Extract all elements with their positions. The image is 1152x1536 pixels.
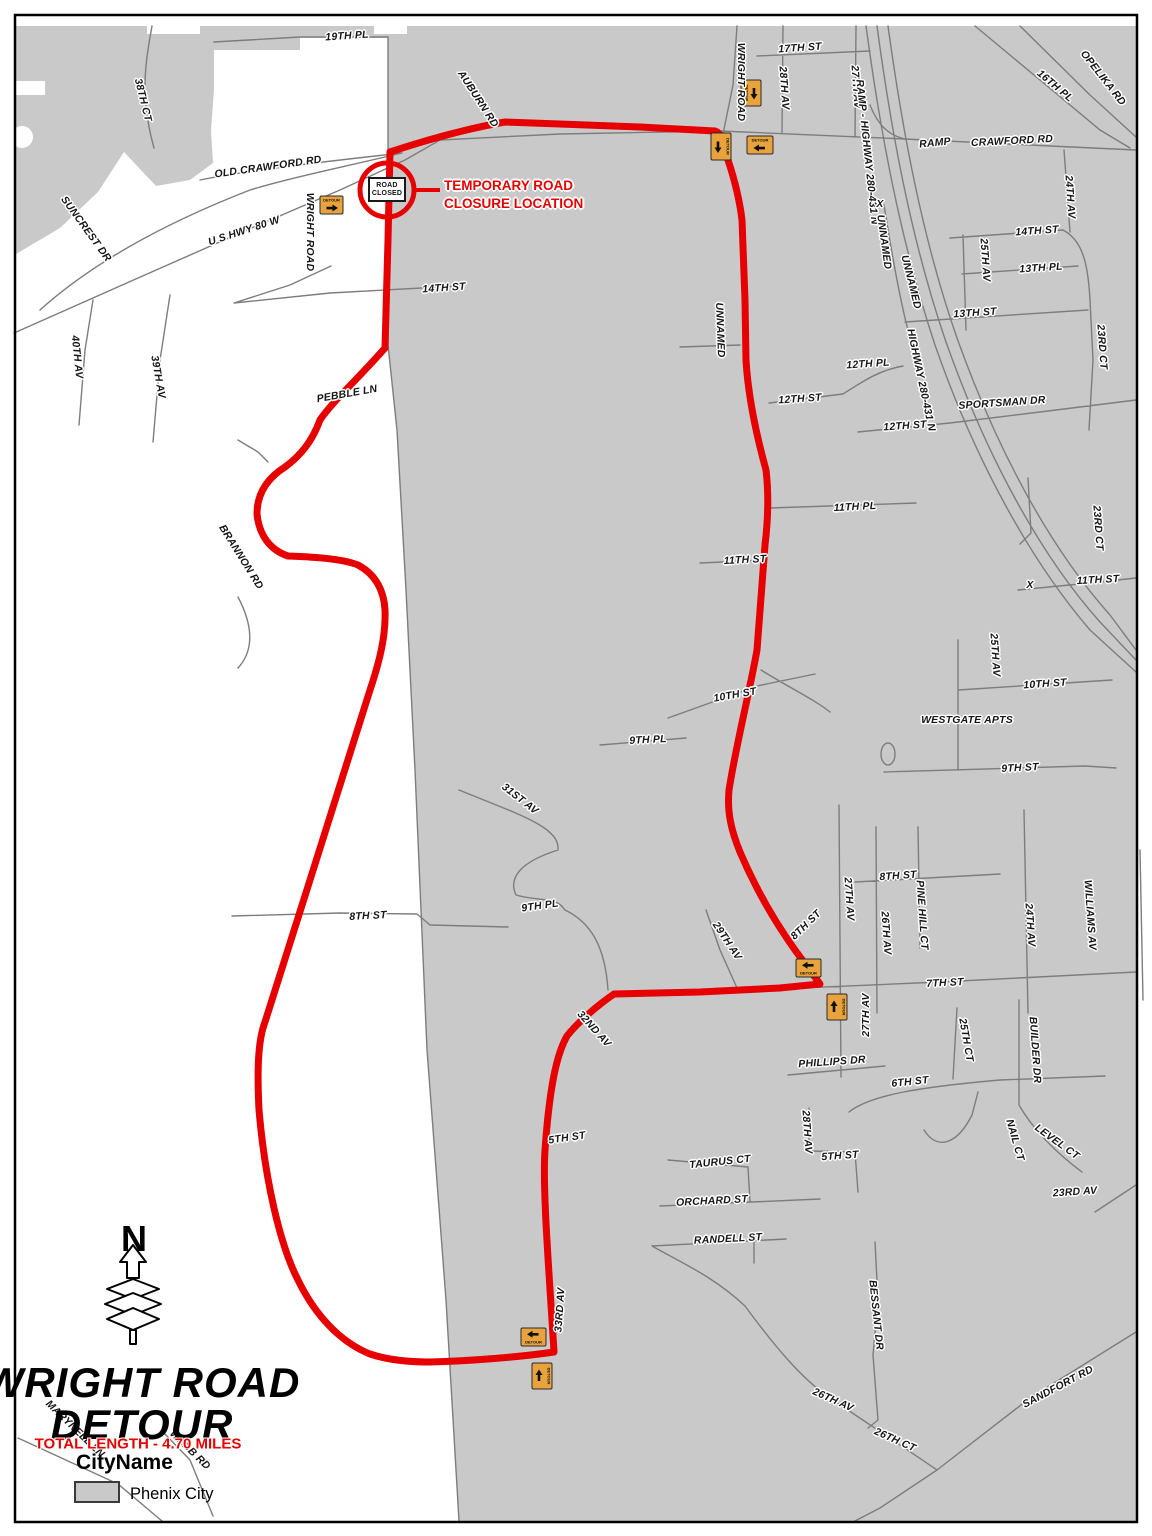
road-label: SUNCREST DR [58, 194, 114, 264]
road-label: 16TH PL [1035, 67, 1076, 104]
road-label: ORCHARD ST [676, 1193, 749, 1209]
detour-map-page: DETOURDETOURDETOURDETOURDETOURDETOURDETO… [0, 0, 1152, 1536]
road-label: UNNAMED [713, 302, 727, 357]
road-label: 6TH ST [891, 1074, 929, 1090]
road-label: 33RD AV [552, 1287, 567, 1332]
road-label: 25TH CT [956, 1017, 975, 1062]
road-closed-sign-line2: CLOSED [372, 190, 402, 198]
road-label: 28TH AV [800, 1110, 815, 1154]
road-label: 5TH ST [821, 1149, 859, 1164]
road-label: 8TH ST [879, 869, 917, 884]
road-label: 31ST AV [499, 781, 540, 817]
road-label: BESSANT DR [866, 1279, 885, 1350]
road-label: HIGHWAY 280-431 N [904, 328, 937, 433]
closure-callout: TEMPORARY ROAD CLOSURE LOCATION [444, 177, 583, 213]
road-label: 9TH ST [1001, 761, 1039, 775]
road-label: UNNAMED [874, 214, 894, 270]
road-label: 19TH PL [325, 29, 369, 44]
road-label: WRIGHT ROAD [735, 43, 747, 122]
road-label: 17TH ST [778, 41, 822, 56]
road-label: OLD CRAWFORD RD [214, 154, 323, 181]
road-label: 26TH AV [811, 1386, 856, 1415]
road-label: U S HWY 80 W [207, 214, 282, 248]
road-label: RANDELL ST [694, 1231, 763, 1247]
road-label: 27TH AV [860, 993, 872, 1036]
road-label: AUBURN RD [455, 68, 501, 129]
road-closed-sign-line1: ROAD [376, 182, 397, 190]
road-label: X [876, 198, 883, 210]
closure-callout-line1: TEMPORARY ROAD [444, 177, 583, 195]
road-label: 28TH AV [777, 66, 792, 110]
road-label: CRAWFORD RD [971, 133, 1054, 149]
road-label: 38TH CT [132, 77, 154, 123]
road-label: 12TH ST [778, 392, 822, 407]
road-label: BRANNON RD [216, 523, 265, 592]
road-label: 32ND AV [575, 1008, 614, 1049]
road-label: BUILDER DR [1027, 1016, 1044, 1083]
road-label: 26TH AV [879, 911, 894, 955]
road-label: 26TH CT [872, 1426, 917, 1455]
road-label: 14TH ST [1015, 224, 1059, 239]
road-label: PEBBLE LN [316, 383, 378, 405]
legend-label-phenix-city: Phenix City [130, 1485, 213, 1504]
road-label: 10TH ST [713, 685, 758, 704]
road-label: 24TH AV [1023, 903, 1038, 947]
road-label: 14TH ST [422, 281, 466, 296]
road-label: 8TH ST [349, 909, 387, 923]
road-label: LEVEL CT [1032, 1122, 1081, 1162]
road-label: 11TH ST [723, 553, 766, 567]
legend-heading: CityName [76, 1451, 173, 1475]
road-label: NAIL CT [1003, 1118, 1026, 1162]
road-label: 9TH PL [629, 733, 667, 747]
road-label: 7TH ST [926, 976, 964, 990]
road-label: 8TH ST [788, 908, 823, 943]
road-label: TAURUS CT [689, 1153, 752, 1171]
road-label: 13TH ST [953, 306, 997, 321]
road-label: 11TH PL [833, 500, 876, 514]
closure-callout-line2: CLOSURE LOCATION [444, 195, 583, 213]
road-label: 11TH ST [1076, 573, 1119, 587]
road-label: 29TH AV [710, 920, 744, 963]
road-label: X [1026, 579, 1033, 591]
road-label: WILLIAMS AV [1082, 879, 1099, 950]
road-label: SANDFORT RD [1021, 1363, 1096, 1410]
road-label: PHILLIPS DR [798, 1054, 866, 1071]
road-label: 27TH AV [842, 877, 857, 921]
road-label: 23RD CT [1090, 505, 1105, 551]
road-label: 13TH PL [1019, 261, 1063, 276]
road-label: 5TH ST [548, 1129, 587, 1146]
total-length-note: TOTAL LENGTH - 4.70 MILES [35, 1436, 242, 1453]
road-label: WRIGHT ROAD [304, 193, 316, 272]
legend-swatch-phenix-city [74, 1481, 120, 1503]
road-label: 9TH PL [521, 897, 560, 914]
road-label: UNNAMED [899, 254, 924, 310]
road-label: 24TH AV [1063, 175, 1078, 219]
road-label: SPORTSMAN DR [958, 394, 1046, 412]
road-label: 12TH ST [883, 419, 927, 434]
road-label: 23RD AV [1052, 1184, 1097, 1199]
road-label: WESTGATE APTS [921, 714, 1013, 726]
map-title-line1: WRIGHT ROAD [0, 1359, 300, 1407]
road-label: 12TH PL [846, 357, 890, 372]
road-label: 40TH AV [69, 335, 85, 379]
road-label: 25TH AV [988, 633, 1003, 677]
road-label: RAMP [919, 135, 952, 150]
road-label: 10TH ST [1023, 677, 1067, 692]
road-labels-layer: 19TH PL38TH CTOLD CRAWFORD RDSUNCREST DR… [0, 0, 1152, 1536]
road-label: OPELIKA RD [1078, 48, 1128, 108]
road-closed-sign: ROAD CLOSED [368, 177, 406, 202]
road-label: 39TH AV [148, 355, 167, 400]
north-label: N [121, 1218, 147, 1260]
road-label: 25TH AV [978, 238, 993, 282]
road-label: 23RD CT [1094, 324, 1109, 370]
road-label: PINE HILL CT [914, 880, 931, 951]
